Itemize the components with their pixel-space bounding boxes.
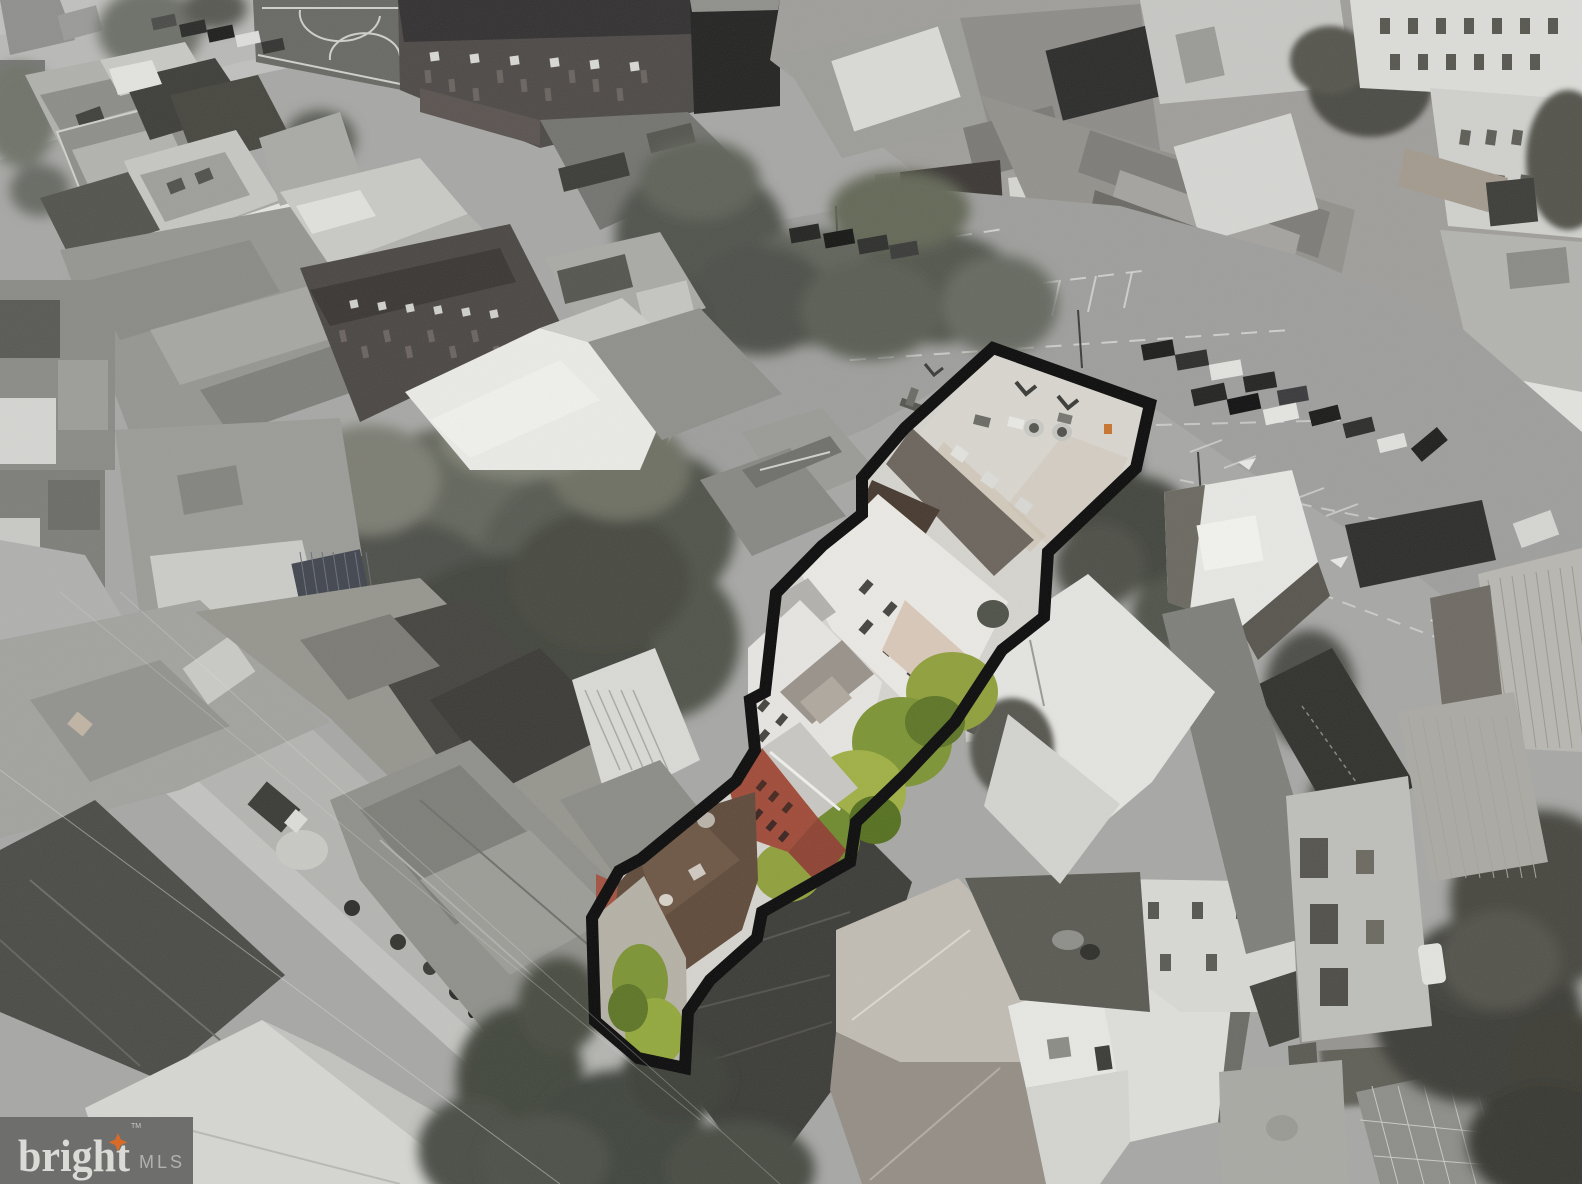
svg-text:bright: bright [18, 1130, 131, 1181]
svg-text:MLS: MLS [139, 1152, 185, 1172]
svg-text:TM: TM [131, 1123, 141, 1130]
